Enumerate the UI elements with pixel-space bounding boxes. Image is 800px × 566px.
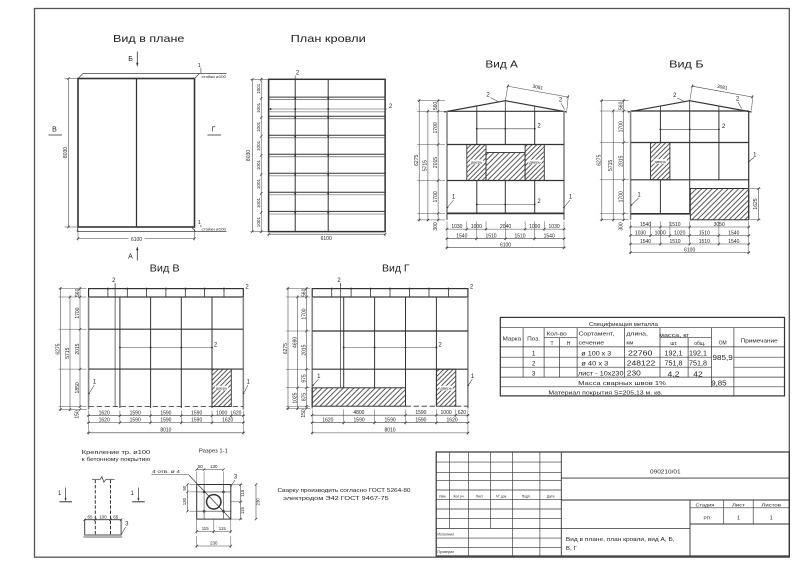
svg-text:230: 230	[627, 369, 641, 378]
svg-text:План кровли: План кровли	[291, 33, 366, 45]
svg-text:6275: 6275	[55, 343, 61, 354]
svg-text:мм: мм	[626, 340, 633, 346]
svg-text:ø 40 х 3: ø 40 х 3	[581, 361, 609, 368]
svg-text:Разрез 1-1: Разрез 1-1	[199, 448, 228, 454]
svg-text:Проверил: Проверил	[437, 550, 454, 554]
svg-text:Стадия: Стадия	[696, 502, 715, 508]
svg-text:1620: 1620	[99, 417, 110, 423]
svg-text:1: 1	[532, 351, 536, 358]
svg-text:8010: 8010	[384, 428, 395, 434]
svg-text:1590: 1590	[415, 410, 426, 416]
svg-text:1030: 1030	[635, 230, 646, 236]
svg-text:Т: Т	[550, 341, 553, 347]
svg-text:Вид Б: Вид Б	[669, 59, 704, 71]
svg-text:6100: 6100	[500, 243, 511, 249]
svg-text:6100: 6100	[131, 237, 142, 243]
svg-text:1590: 1590	[191, 411, 202, 417]
svg-text:300: 300	[618, 222, 624, 231]
svg-text:1510: 1510	[669, 239, 680, 245]
svg-text:5715: 5715	[423, 160, 429, 171]
svg-text:1001: 1001	[256, 197, 261, 208]
svg-text:1020: 1020	[674, 230, 685, 236]
svg-text:090210/01: 090210/01	[650, 470, 681, 476]
svg-text:115: 115	[202, 526, 210, 531]
svg-text:50: 50	[198, 464, 203, 469]
svg-text:1625: 1625	[753, 198, 759, 209]
svg-text:3050: 3050	[714, 222, 725, 228]
svg-text:Поз.: Поз.	[527, 337, 540, 343]
svg-text:130: 130	[210, 464, 218, 469]
svg-text:дверь: дверь	[471, 160, 482, 164]
svg-text:22760: 22760	[628, 349, 652, 358]
svg-text:1: 1	[737, 516, 740, 522]
svg-text:1000: 1000	[216, 411, 227, 417]
svg-text:длина,: длина,	[626, 332, 648, 338]
svg-text:2015: 2015	[301, 344, 307, 355]
svg-text:2015: 2015	[433, 157, 439, 168]
svg-text:Марка: Марка	[503, 337, 522, 343]
svg-text:751,8: 751,8	[665, 361, 683, 368]
svg-text:Листов: Листов	[761, 502, 781, 508]
svg-text:стойки ø100: стойки ø100	[202, 227, 227, 231]
svg-text:1510: 1510	[669, 222, 680, 228]
svg-text:2: 2	[532, 361, 536, 368]
svg-text:2015: 2015	[619, 155, 625, 166]
svg-text:Спецификация металла: Спецификация металла	[589, 322, 659, 328]
svg-text:Примечание: Примечание	[741, 339, 778, 345]
svg-text:1510: 1510	[699, 239, 710, 245]
svg-text:192,1: 192,1	[665, 351, 683, 358]
svg-text:Вид А: Вид А	[485, 59, 518, 71]
svg-text:6275: 6275	[283, 343, 289, 354]
svg-text:Сортамент,: Сортамент,	[579, 332, 615, 338]
svg-text:6100: 6100	[684, 247, 695, 253]
svg-text:А: А	[128, 254, 133, 261]
svg-text:1001: 1001	[256, 159, 261, 170]
svg-text:115: 115	[240, 506, 245, 514]
svg-text:РП: РП	[703, 516, 710, 522]
svg-text:6275: 6275	[414, 155, 420, 166]
svg-text:1700: 1700	[433, 122, 439, 133]
svg-text:стойки ø100: стойки ø100	[202, 75, 227, 79]
svg-text:1700: 1700	[301, 308, 307, 319]
svg-text:Вид Г: Вид Г	[382, 263, 410, 275]
svg-text:Крепление тр. ø100: Крепление тр. ø100	[82, 450, 151, 456]
svg-text:1700: 1700	[75, 307, 81, 318]
svg-text:1540: 1540	[640, 222, 651, 228]
svg-text:Г: Г	[212, 127, 216, 134]
svg-text:3: 3	[532, 371, 536, 378]
svg-text:50: 50	[182, 485, 187, 490]
svg-text:дверь: дверь	[440, 387, 451, 391]
svg-text:Масса сварных швов 1%: Масса сварных швов 1%	[578, 381, 666, 387]
svg-text:В: В	[52, 127, 57, 134]
svg-text:общ.: общ.	[694, 341, 705, 347]
svg-text:6275: 6275	[597, 154, 603, 165]
svg-text:1590: 1590	[160, 411, 171, 417]
svg-text:дверь: дверь	[216, 387, 227, 391]
svg-text:1540: 1540	[640, 239, 651, 245]
svg-text:1590: 1590	[354, 418, 365, 424]
svg-text:ø 100 х 3: ø 100 х 3	[581, 351, 611, 358]
svg-text:дверь: дверь	[655, 160, 666, 164]
svg-text:N° док.: N° док.	[496, 494, 507, 498]
svg-text:1510: 1510	[485, 234, 496, 240]
svg-text:975: 975	[301, 374, 307, 383]
svg-text:300: 300	[433, 222, 439, 231]
svg-text:1001: 1001	[256, 217, 261, 228]
svg-text:560: 560	[433, 102, 439, 111]
svg-text:192,1: 192,1	[689, 351, 707, 358]
svg-text:масса, кг: масса, кг	[659, 333, 689, 339]
svg-text:Сварку производить согласно ГО: Сварку производить согласно ГОСТ 5264-80	[278, 488, 411, 494]
svg-text:1025: 1025	[292, 392, 298, 403]
svg-text:1540: 1540	[456, 234, 467, 240]
svg-text:1540: 1540	[544, 234, 555, 240]
svg-text:1590: 1590	[191, 417, 202, 423]
svg-text:1590: 1590	[130, 411, 141, 417]
svg-text:1001: 1001	[256, 102, 261, 113]
svg-text:Вид в плане, план кровли, вид: Вид в плане, план кровли, вид А, Б,	[566, 537, 675, 543]
svg-text:230: 230	[210, 541, 218, 546]
svg-text:4,2: 4,2	[668, 371, 680, 378]
svg-text:Лист: Лист	[732, 502, 746, 508]
svg-text:дверь: дверь	[529, 160, 540, 164]
svg-text:4690: 4690	[292, 337, 298, 348]
svg-text:150: 150	[75, 410, 81, 419]
svg-text:Материал покрытия S=205,13: Материал покрытия S=205,13 м. кв.	[548, 391, 663, 397]
svg-text:5715: 5715	[608, 160, 614, 171]
svg-text:248122: 248122	[627, 359, 656, 368]
svg-text:230: 230	[255, 498, 260, 506]
svg-text:2015: 2015	[75, 343, 81, 354]
svg-text:1700: 1700	[619, 121, 625, 132]
svg-text:1540: 1540	[728, 230, 739, 236]
svg-text:65: 65	[113, 514, 118, 519]
svg-text:560: 560	[619, 101, 625, 110]
svg-text:875: 875	[301, 393, 307, 402]
svg-text:Подп.: Подп.	[522, 494, 531, 498]
svg-text:560: 560	[301, 288, 307, 297]
svg-text:620: 620	[233, 411, 242, 417]
svg-text:1590: 1590	[160, 417, 171, 423]
svg-text:8030: 8030	[63, 147, 69, 158]
svg-text:1620: 1620	[322, 418, 333, 424]
svg-text:1030: 1030	[549, 224, 560, 230]
svg-text:В, Г: В, Г	[566, 546, 577, 552]
svg-text:1700: 1700	[433, 191, 439, 202]
svg-text:4800: 4800	[353, 410, 364, 416]
svg-text:8010: 8010	[160, 428, 171, 434]
svg-text:42: 42	[693, 371, 703, 378]
svg-text:ОМ: ОМ	[719, 341, 727, 347]
svg-text:1: 1	[198, 220, 201, 226]
svg-text:Исполнил: Исполнил	[437, 533, 454, 537]
svg-text:Вид в плане: Вид в плане	[113, 33, 184, 45]
svg-text:Лист: Лист	[476, 494, 484, 498]
svg-text:1620: 1620	[222, 417, 233, 423]
svg-text:Б: Б	[128, 56, 133, 63]
svg-text:1: 1	[198, 63, 201, 69]
svg-text:5715: 5715	[65, 347, 71, 358]
svg-text:150: 150	[301, 409, 307, 418]
svg-text:шт.: шт.	[670, 341, 677, 347]
svg-text:1001: 1001	[256, 121, 261, 132]
svg-text:115: 115	[219, 526, 227, 531]
svg-text:Изм.: Изм.	[439, 494, 446, 498]
svg-text:1000: 1000	[441, 410, 452, 416]
svg-text:1540: 1540	[728, 239, 739, 245]
svg-text:620: 620	[458, 410, 467, 416]
svg-text:1001: 1001	[256, 83, 261, 94]
svg-text:1590: 1590	[385, 418, 396, 424]
svg-text:1001: 1001	[256, 178, 261, 189]
svg-text:1620: 1620	[447, 418, 458, 424]
svg-text:Вид В: Вид В	[150, 263, 180, 275]
svg-text:1030: 1030	[451, 224, 462, 230]
svg-text:Кол.уч.: Кол.уч.	[453, 494, 464, 498]
svg-text:1700: 1700	[619, 191, 625, 202]
svg-text:сечение: сечение	[579, 340, 605, 346]
svg-text:985,9: 985,9	[713, 353, 733, 362]
svg-text:65: 65	[88, 514, 93, 519]
svg-text:130: 130	[182, 497, 187, 505]
svg-text:115: 115	[240, 489, 245, 497]
svg-text:Н: Н	[567, 341, 571, 347]
svg-text:1510: 1510	[514, 234, 525, 240]
svg-text:9,85: 9,85	[711, 378, 726, 387]
svg-text:1590: 1590	[130, 417, 141, 423]
svg-text:Кол-во: Кол-во	[547, 332, 567, 338]
svg-text:1850: 1850	[75, 382, 81, 393]
svg-text:1001: 1001	[256, 140, 261, 151]
svg-text:1510: 1510	[699, 230, 710, 236]
svg-text:1000: 1000	[529, 224, 540, 230]
svg-text:1590: 1590	[415, 418, 426, 424]
svg-text:1: 1	[770, 516, 773, 522]
svg-text:751,8: 751,8	[689, 361, 707, 368]
svg-text:к бетонному покрытию: к бетонному покрытию	[82, 457, 151, 463]
svg-text:560: 560	[75, 288, 81, 297]
svg-text:электродом Э42 ГОСТ 9467-75: электродом Э42 ГОСТ 9467-75	[283, 496, 389, 502]
svg-text:6100: 6100	[321, 236, 332, 242]
svg-text:1620: 1620	[99, 411, 110, 417]
svg-text:8030: 8030	[246, 150, 252, 161]
svg-text:100: 100	[99, 514, 107, 519]
svg-text:4 отв. ø 4: 4 отв. ø 4	[152, 469, 181, 474]
svg-text:лист - 10х230: лист - 10х230	[578, 371, 624, 378]
svg-text:Дата: Дата	[547, 494, 555, 498]
